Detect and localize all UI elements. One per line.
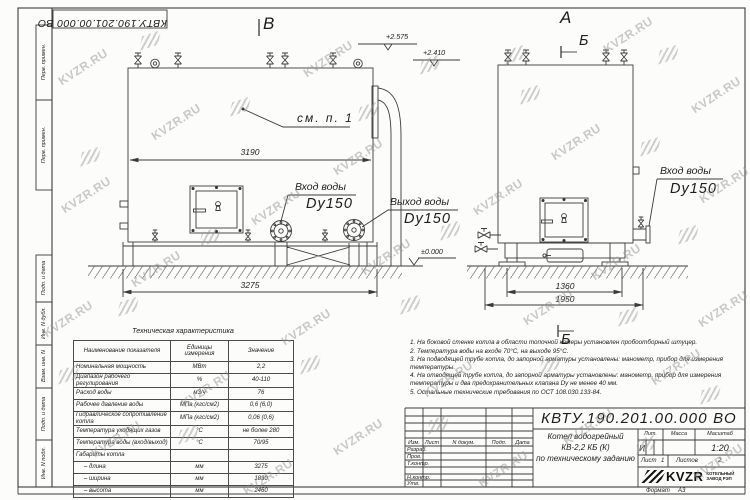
- see-note-callout: см. п. 1: [297, 112, 354, 125]
- outlet-dy-main: Dy150: [404, 212, 451, 228]
- small-valve-icon: [638, 217, 644, 229]
- drain-valve-icon: [322, 230, 328, 242]
- valve-icon: [603, 50, 610, 65]
- company-logo: KVZR КОТЕЛЬНЫЙ ЗАВОД РЭП: [644, 468, 744, 485]
- valve-icon: [135, 53, 142, 68]
- margin-label-podp2: Подп. и дата: [41, 397, 47, 431]
- row-value: 0,06 (0,6): [229, 412, 294, 426]
- note-2: 2. Температура воды на входе 70°С, на вы…: [410, 348, 744, 356]
- col-header-value: Значение: [229, 341, 294, 362]
- row-name: Габариты котла: [74, 450, 171, 462]
- row-value: 2,2: [229, 362, 294, 374]
- sheets-label: Листов: [676, 458, 698, 465]
- table-header-row: Наименование показателя Единицы измерени…: [74, 341, 294, 362]
- side-valve-icon: [478, 229, 501, 239]
- table-row: Рабочее давление водыМПа (кгс/см2)0,6 (6…: [74, 400, 294, 412]
- row-value: 1830: [229, 474, 294, 486]
- section-label-B-top: Б: [579, 34, 589, 50]
- sheets-value: 2: [718, 458, 721, 465]
- row-units: МПа (кгс/см2): [171, 400, 229, 412]
- scale-value: 1:20: [695, 443, 745, 453]
- flue-outlet: [372, 86, 401, 266]
- col-izm: Изм.: [405, 440, 423, 446]
- inlet-label-side: Вход воды: [660, 166, 711, 178]
- row-units: °С: [171, 426, 229, 438]
- col-ndoc: N докум.: [441, 440, 486, 446]
- row-value: 2460: [229, 486, 294, 498]
- product-title-2: КВ-2,2 КБ (К): [533, 443, 638, 452]
- margin-label-perv2: Перв. примен.: [41, 127, 47, 164]
- row-name: Расход воды: [74, 388, 171, 400]
- valve-icon: [175, 53, 182, 68]
- elevation-zero: ±0.000: [421, 248, 443, 256]
- table-row: – ширинамм1830: [74, 474, 294, 486]
- col-list: Лист: [423, 440, 441, 446]
- outlet-label-main: Выход воды: [390, 197, 449, 209]
- dim-3275: 3275: [230, 281, 270, 291]
- note-3: 3. На подводящей трубе котла, до запорно…: [410, 356, 744, 371]
- row-value: 70/95: [229, 438, 294, 450]
- logo-subtitle: КОТЕЛЬНЫЙ ЗАВОД РЭП: [706, 472, 734, 482]
- furnace-door: [190, 186, 243, 233]
- note-1: 1. На боковой стенке котла в области топ…: [410, 339, 744, 347]
- inlet-dy-side: Dy150: [670, 182, 717, 198]
- technical-notes: 1. На боковой стенке котла в области топ…: [410, 339, 744, 397]
- logo-sub-line2: ЗАВОД РЭП: [706, 477, 734, 482]
- side-valve-icon: [475, 243, 498, 253]
- dim-1360: 1360: [548, 282, 582, 292]
- view-label-B: В: [263, 15, 274, 33]
- row-name: Температура воды (вход/выход): [74, 438, 171, 450]
- row-units: мм: [171, 462, 229, 474]
- valve-icon: [330, 53, 337, 68]
- col-header-name: Наименование показателя: [74, 341, 171, 362]
- table-row: Габариты котла: [74, 450, 294, 462]
- margin-label-inv-dubl: Инв. N дубл.: [41, 307, 47, 339]
- format-value: А3: [678, 488, 685, 495]
- sheet-label: Лист: [641, 458, 656, 465]
- furnace-door-side: [540, 198, 588, 242]
- row-prov: Пров.: [407, 454, 422, 460]
- drain-valve-icon: [152, 230, 158, 242]
- table-row: – высотамм2460: [74, 486, 294, 498]
- valve-icon: [282, 53, 289, 68]
- table-row: Номинальная мощностьМВт2,2: [74, 362, 294, 374]
- row-nkontr: Н.контр.: [407, 475, 430, 481]
- lifting-lug-icon: [151, 59, 160, 68]
- margin-label-perv1: Перв. примен.: [41, 44, 47, 81]
- elevation-2575: +2.575: [386, 33, 408, 41]
- row-value: 3275: [229, 462, 294, 474]
- table-row: Расход водым3/ч76: [74, 388, 294, 400]
- row-value: 40-110: [229, 374, 294, 388]
- lit-value: И: [638, 444, 646, 453]
- dim-1950: 1950: [548, 295, 582, 305]
- inlet-label-main: Вход воды: [295, 182, 346, 194]
- row-name: – длина: [74, 462, 171, 474]
- margin-label-podp1: Подп. и дата: [41, 261, 47, 295]
- margin-label-inv-podl: Инв. N подл.: [41, 447, 47, 479]
- corner-stamp: КВТУ.190.201.00.000 ВО: [53, 10, 167, 28]
- valve-icon: [523, 50, 530, 65]
- tech-table-title: Техническая характеристика: [73, 327, 293, 335]
- main-view: [88, 19, 460, 297]
- view-label-A: А: [560, 9, 571, 27]
- valve-icon: [621, 50, 628, 65]
- kvzr-logo-icon: [641, 470, 667, 483]
- lifting-lug-icon: [354, 59, 363, 68]
- note-5: 5. Остальные технические требования по О…: [410, 389, 744, 397]
- format-label: Формат: [646, 488, 670, 495]
- product-title-3: по техническому заданию: [533, 454, 638, 463]
- row-value: 76: [229, 388, 294, 400]
- row-name: – ширина: [74, 474, 171, 486]
- elevation-2410: +2.410: [423, 49, 445, 57]
- row-name: Гидравлическое сопротивление котла: [74, 412, 171, 426]
- mass-label: Масса: [663, 431, 695, 437]
- drain-valve-icon: [245, 230, 251, 242]
- row-name: Температура уходящих газов: [74, 426, 171, 438]
- row-units: м3/ч: [171, 388, 229, 400]
- row-units: мм: [171, 474, 229, 486]
- row-units: МПа (кгс/см2): [171, 412, 229, 426]
- row-value: не более 280: [229, 426, 294, 438]
- valve-icon: [505, 50, 512, 65]
- scale-label: Масштаб: [695, 431, 745, 437]
- row-tkontr: Т.контр.: [407, 461, 429, 467]
- valve-icon: [267, 53, 274, 68]
- row-units: %: [171, 374, 229, 388]
- water-inlet-flange: [271, 221, 292, 242]
- doc-number: КВТУ.190.201.00.000 ВО: [535, 409, 743, 428]
- row-units: мм: [171, 486, 229, 498]
- col-podp: Подп.: [486, 440, 512, 446]
- row-utv: Утв.: [407, 481, 420, 487]
- row-units: °С: [171, 438, 229, 450]
- table-row: Температура уходящих газов°Сне более 280: [74, 426, 294, 438]
- table-row: Температура воды (вход/выход)°С70/95: [74, 438, 294, 450]
- col-data: Дата: [512, 440, 533, 446]
- row-value: [229, 450, 294, 462]
- row-name: Диапазон рабочего регулирования: [74, 374, 171, 388]
- col-header-units: Единицы измерения: [171, 341, 229, 362]
- row-name: Номинальная мощность: [74, 362, 171, 374]
- note-4: 4. На отводящей трубе котла, до запорной…: [410, 372, 744, 387]
- dim-3190: 3190: [230, 148, 270, 158]
- product-title-1: Котел водогрейный: [533, 432, 638, 441]
- sheet-value: 1: [661, 458, 664, 465]
- lit-label: Лит.: [638, 431, 663, 437]
- table-row: Диапазон рабочего регулирования%40-110: [74, 374, 294, 388]
- row-name: – высота: [74, 486, 171, 498]
- logo-name: KVZR: [666, 469, 703, 484]
- water-outlet-flange: [344, 220, 365, 241]
- row-name: Рабочее давление воды: [74, 400, 171, 412]
- drawing-sheet: { "watermark": { "text": "KVZR.RU" }, "s…: [0, 0, 750, 500]
- inlet-dy-main: Dy150: [306, 197, 353, 213]
- row-razrab: Разраб.: [407, 447, 427, 453]
- row-value: 0,6 (6,0): [229, 400, 294, 412]
- margin-label-vzam: Взам. инв. N: [41, 350, 47, 382]
- row-units: [171, 450, 229, 462]
- table-row: – длинамм3275: [74, 462, 294, 474]
- table-row: Гидравлическое сопротивление котлаМПа (к…: [74, 412, 294, 426]
- row-units: МВт: [171, 362, 229, 374]
- tech-table: Наименование показателя Единицы измерени…: [73, 340, 294, 498]
